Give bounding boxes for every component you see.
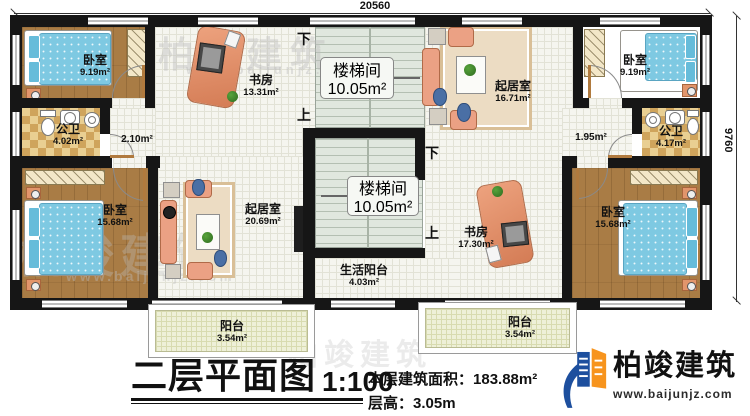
- room-name: 公卫: [643, 125, 699, 138]
- title-underline: [131, 403, 363, 404]
- room-label-study-top: 书房 13.31m²: [226, 74, 296, 98]
- title-underline: [131, 398, 363, 401]
- plant-icon: [464, 64, 476, 76]
- dimension-top: 20560: [345, 0, 405, 12]
- nightstand: [682, 279, 697, 291]
- room-name: 起居室: [232, 203, 294, 216]
- sink-icon: [669, 112, 681, 124]
- plant-icon: [492, 186, 503, 197]
- wall: [22, 98, 112, 108]
- stairwell-top-labelbox: 楼梯间 10.05m²: [320, 57, 394, 99]
- washbasin-icon: [649, 116, 657, 124]
- room-name: 阳台: [490, 316, 550, 329]
- floor-plan: 20560 9760 柏竣建筑 www.baijunjz.com 柏竣建筑 ww…: [0, 0, 750, 416]
- window: [702, 205, 710, 280]
- room-area: 4.03m²: [322, 277, 406, 288]
- company-logo-icon: [556, 346, 610, 410]
- room-label-bathroom-r: 公卫 4.17m²: [643, 125, 699, 149]
- corridor-r-area: 1.95m²: [562, 132, 620, 143]
- wall: [100, 108, 110, 134]
- room-name: 书房: [445, 226, 507, 239]
- door-gap-floor: [577, 156, 608, 168]
- room-area: 13.31m²: [226, 87, 296, 98]
- wall: [303, 128, 425, 138]
- window: [42, 300, 127, 308]
- room-name: 生活阳台: [322, 264, 406, 277]
- stair-up-label: 上: [297, 108, 311, 122]
- company-website: www.baijunjz.com: [613, 387, 733, 401]
- room-label-bedroom-tl: 卧室 9.19m²: [62, 54, 128, 78]
- computer-monitor-icon: [196, 42, 226, 73]
- stair-arrow-line: [394, 77, 420, 79]
- door-leaf: [588, 65, 591, 98]
- room-name: 起居室: [482, 80, 544, 93]
- wall: [22, 156, 112, 168]
- door-leaf: [143, 168, 146, 201]
- side-table: [163, 182, 180, 198]
- window: [310, 17, 415, 25]
- stair-arrow-line: [321, 195, 347, 197]
- room-name: 楼梯间: [333, 57, 381, 81]
- armchair: [448, 27, 474, 47]
- floor-height-value: 3.05m: [413, 395, 456, 412]
- person-figure: [457, 103, 471, 122]
- wall: [303, 248, 425, 258]
- window: [702, 35, 710, 85]
- room-area: 3.54m²: [490, 329, 550, 340]
- wall: [622, 98, 700, 108]
- room-area: 4.17m²: [643, 138, 699, 149]
- window: [12, 35, 20, 85]
- stair-down-label: 下: [425, 146, 439, 160]
- dimension-right-line: [736, 16, 737, 302]
- person-figure: [433, 88, 447, 106]
- door-gap-floor: [589, 98, 622, 108]
- tv-icon: [294, 206, 303, 252]
- wall: [573, 27, 583, 108]
- door-leaf: [608, 155, 632, 158]
- toilet-icon: [687, 110, 699, 117]
- door-gap-floor: [112, 98, 145, 108]
- window: [702, 112, 710, 156]
- side-table: [429, 108, 447, 125]
- nightstand: [26, 187, 41, 199]
- room-area: 10.05m²: [354, 199, 413, 217]
- room-area: 3.54m²: [202, 333, 262, 344]
- room-name: 卧室: [62, 54, 128, 67]
- wall: [632, 108, 642, 134]
- room-area: 4.02m²: [39, 136, 97, 147]
- page-title: 二层平面图: [131, 356, 316, 396]
- floor-height-label: 层高：: [368, 395, 413, 412]
- floor-height-text: 层高：3.05m: [368, 392, 456, 413]
- room-area: 15.68m²: [582, 219, 644, 230]
- toilet-icon: [40, 110, 56, 117]
- room-name: 卧室: [604, 54, 666, 67]
- dimension-right: 9760: [722, 128, 734, 152]
- corridor-l-area: 2.10m²: [108, 134, 166, 145]
- lamp-icon: [163, 206, 176, 219]
- armchair: [187, 262, 213, 280]
- wall: [573, 98, 589, 108]
- window: [198, 17, 258, 25]
- wall: [303, 128, 315, 298]
- room-label-bathroom-l: 公卫 4.02m²: [39, 123, 97, 147]
- room-area: 16.71m²: [482, 93, 544, 104]
- room-area: 9.19m²: [62, 67, 128, 78]
- window: [600, 300, 685, 308]
- room-label-living-bl: 起居室 20.69m²: [232, 203, 294, 227]
- door-leaf: [576, 168, 579, 199]
- side-table: [428, 28, 446, 45]
- room-name: 书房: [226, 74, 296, 87]
- window: [12, 112, 20, 156]
- wall: [415, 128, 425, 180]
- nightstand: [682, 187, 697, 199]
- window: [331, 300, 395, 308]
- room-label-study-bottom: 书房 17.30m²: [445, 226, 507, 250]
- window: [462, 17, 522, 25]
- room-label-bedroom-bl: 卧室 15.68m²: [84, 204, 146, 228]
- window: [88, 17, 148, 25]
- wardrobe: [630, 170, 698, 185]
- room-area: 9.19m²: [604, 67, 666, 78]
- room-label-balcony-right: 阳台 3.54m²: [490, 316, 550, 340]
- company-name: 柏竣建筑: [613, 350, 737, 382]
- room-area: 17.30m²: [445, 239, 507, 250]
- side-table: [165, 264, 181, 279]
- room-area: 10.05m²: [328, 81, 387, 99]
- door-leaf: [110, 155, 134, 158]
- building-area-text: 本层建筑面积：183.88m²: [368, 368, 537, 389]
- wall: [145, 27, 155, 108]
- room-name: 卧室: [582, 206, 644, 219]
- nightstand: [682, 84, 697, 97]
- nightstand: [26, 279, 41, 291]
- room-name: 卧室: [84, 204, 146, 217]
- room-area: 15.68m²: [84, 217, 146, 228]
- wall: [148, 156, 158, 298]
- door-leaf: [142, 65, 145, 98]
- room-name: 公卫: [39, 123, 97, 136]
- room-label-life-balcony: 生活阳台 4.03m²: [322, 264, 406, 288]
- wall: [562, 156, 572, 298]
- window: [12, 210, 20, 280]
- building-area-value: 183.88m²: [473, 371, 537, 388]
- room-name: 阳台: [202, 320, 262, 333]
- stairwell-mid-labelbox: 楼梯间 10.05m²: [347, 176, 419, 216]
- stair-down-label: 下: [297, 32, 311, 46]
- person-figure: [214, 250, 227, 267]
- room-label-balcony-left: 阳台 3.54m²: [202, 320, 262, 344]
- wardrobe: [25, 170, 105, 185]
- plant-icon: [202, 232, 213, 243]
- room-label-bedroom-tr: 卧室 9.19m²: [604, 54, 666, 78]
- stair-up-label: 上: [425, 226, 439, 240]
- room-area: 20.69m²: [232, 216, 294, 227]
- person-figure: [192, 179, 205, 196]
- building-area-label: 本层建筑面积：: [368, 371, 473, 388]
- window: [600, 17, 660, 25]
- room-label-living-tr: 起居室 16.71m²: [482, 80, 544, 104]
- room-label-bedroom-br: 卧室 15.68m²: [582, 206, 644, 230]
- room-name: 楼梯间: [359, 175, 407, 199]
